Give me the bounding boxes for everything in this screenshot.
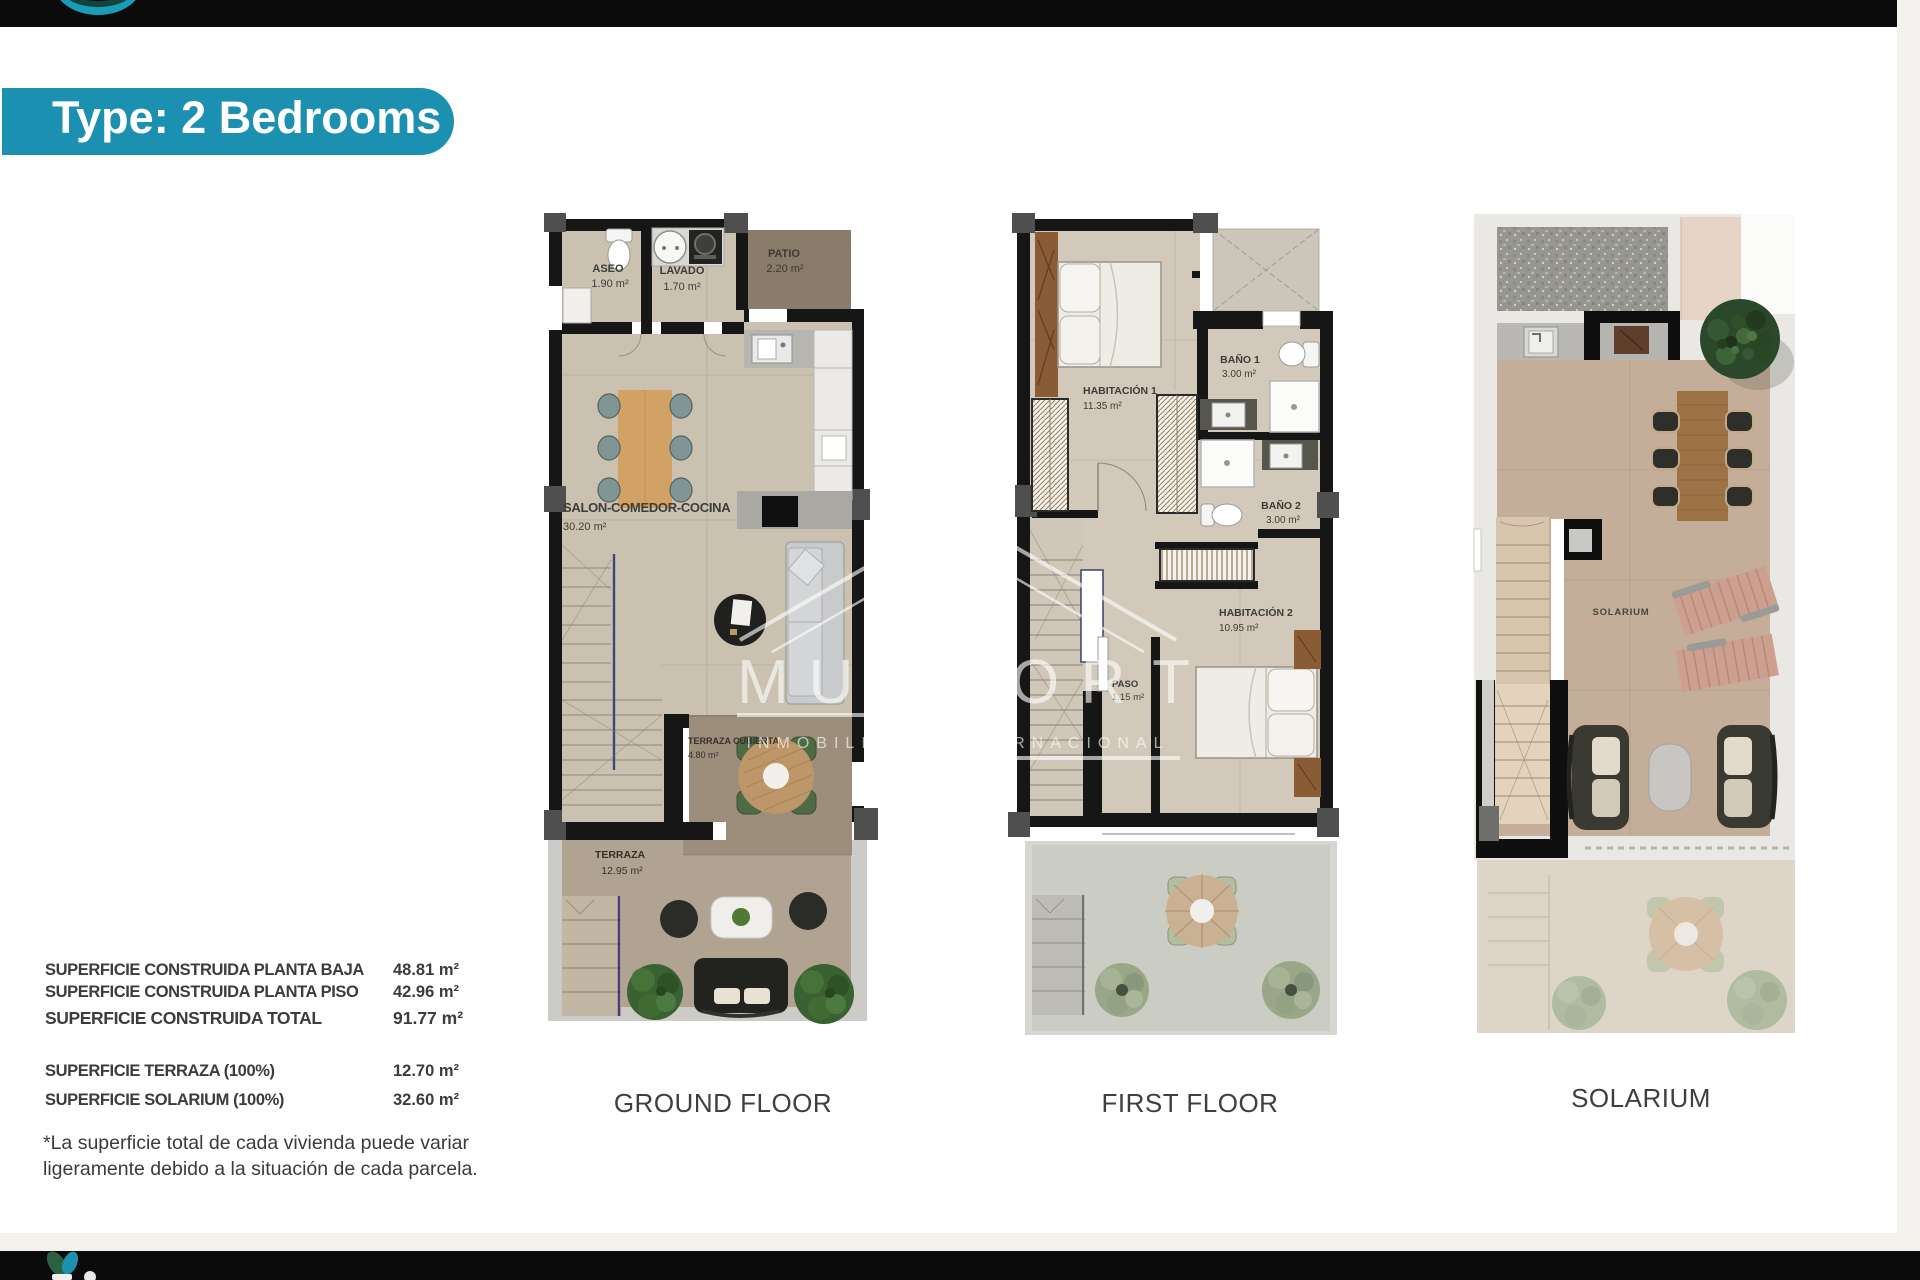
svg-text:M: M xyxy=(737,648,789,717)
svg-text:LAVADO: LAVADO xyxy=(660,265,705,277)
svg-text:1.70 m²: 1.70 m² xyxy=(663,281,701,293)
svg-text:2.20 m²: 2.20 m² xyxy=(766,263,804,275)
svg-text:TERRAZA: TERRAZA xyxy=(595,849,646,861)
svg-text:FIRST FLOOR: FIRST FLOOR xyxy=(1102,1088,1279,1118)
svg-text:ASEO: ASEO xyxy=(592,263,624,275)
svg-text:U: U xyxy=(809,648,854,717)
svg-text:GROUND FLOOR: GROUND FLOOR xyxy=(614,1088,832,1118)
svg-text:SALON-COMEDOR-COCINA: SALON-COMEDOR-COCINA xyxy=(563,500,731,515)
svg-text:T: T xyxy=(1152,648,1190,717)
svg-text:11.35 m²: 11.35 m² xyxy=(1083,401,1122,412)
svg-text:10.95 m²: 10.95 m² xyxy=(1219,623,1259,634)
svg-text:R: R xyxy=(877,648,922,717)
svg-text:R: R xyxy=(1081,648,1126,717)
svg-text:INMOBILIARIA INTERNACIONAL: INMOBILIARIA INTERNACIONAL xyxy=(747,735,1170,752)
svg-text:BAÑO 1: BAÑO 1 xyxy=(1220,353,1260,366)
svg-text:P: P xyxy=(946,648,987,717)
svg-text:O: O xyxy=(1011,648,1059,717)
svg-text:SOLARIUM: SOLARIUM xyxy=(1592,607,1649,618)
svg-text:3.00 m²: 3.00 m² xyxy=(1222,369,1257,380)
svg-text:HABITACIÓN 2: HABITACIÓN 2 xyxy=(1219,606,1293,619)
svg-text:PATIO: PATIO xyxy=(768,248,800,260)
svg-text:30.20 m²: 30.20 m² xyxy=(563,521,607,533)
svg-text:3.00 m²: 3.00 m² xyxy=(1266,515,1301,526)
svg-text:4.80 m²: 4.80 m² xyxy=(688,750,719,760)
svg-text:SOLARIUM: SOLARIUM xyxy=(1571,1083,1711,1113)
svg-text:12.95 m²: 12.95 m² xyxy=(601,865,643,877)
svg-text:BAÑO 2: BAÑO 2 xyxy=(1261,499,1301,512)
svg-text:HABITACIÓN 1: HABITACIÓN 1 xyxy=(1083,384,1157,397)
svg-text:1.90 m²: 1.90 m² xyxy=(591,278,629,290)
